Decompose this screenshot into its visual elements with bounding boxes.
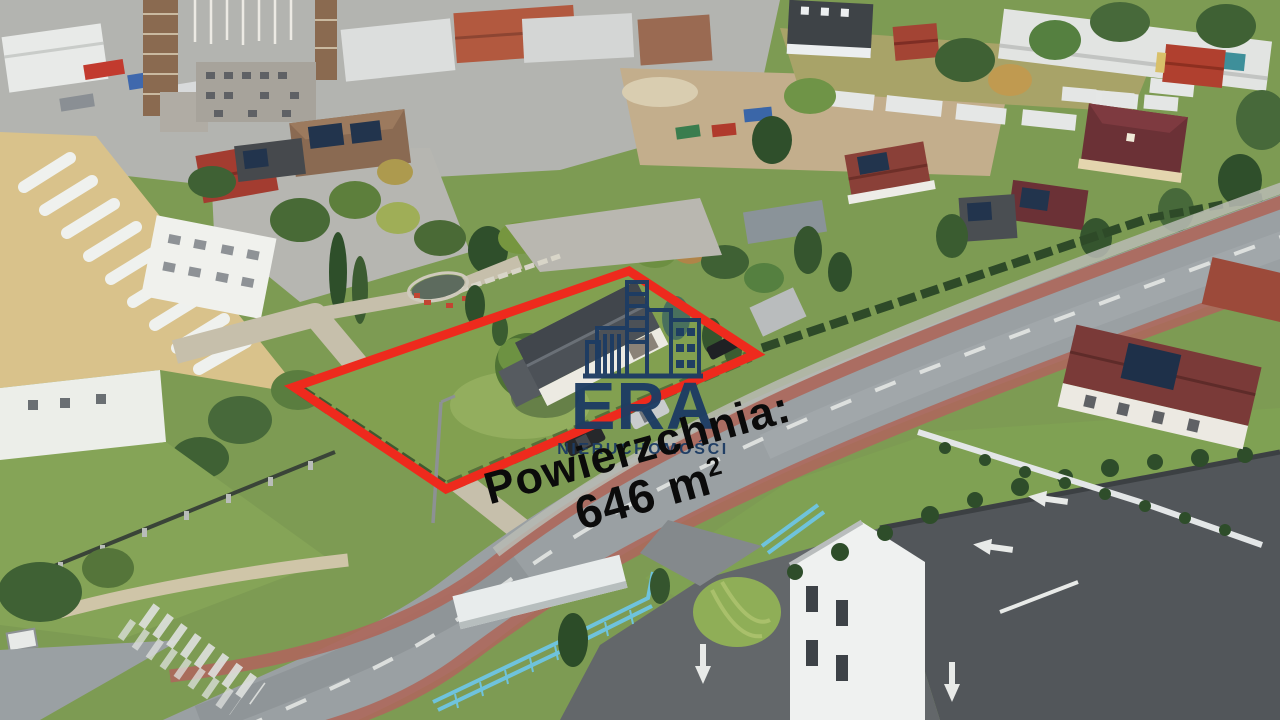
aerial-photo bbox=[0, 0, 1280, 720]
aerial-listing-photo: { "watermark": { "brand": "ERA", "brand_… bbox=[0, 0, 1280, 720]
commercial-building bbox=[790, 522, 925, 720]
